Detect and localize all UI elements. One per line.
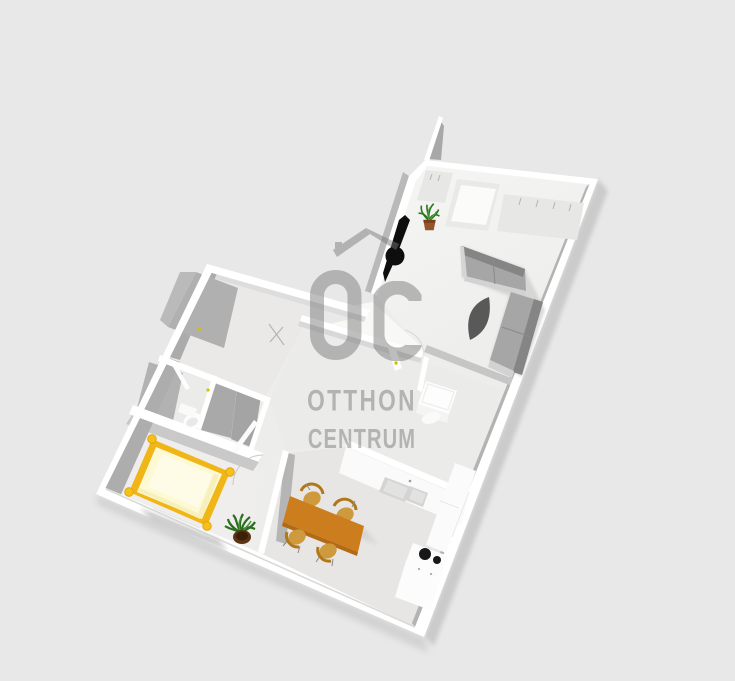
svg-text:OTTHON: OTTHON [307,384,417,418]
svg-text:CENTRUM: CENTRUM [308,424,416,455]
